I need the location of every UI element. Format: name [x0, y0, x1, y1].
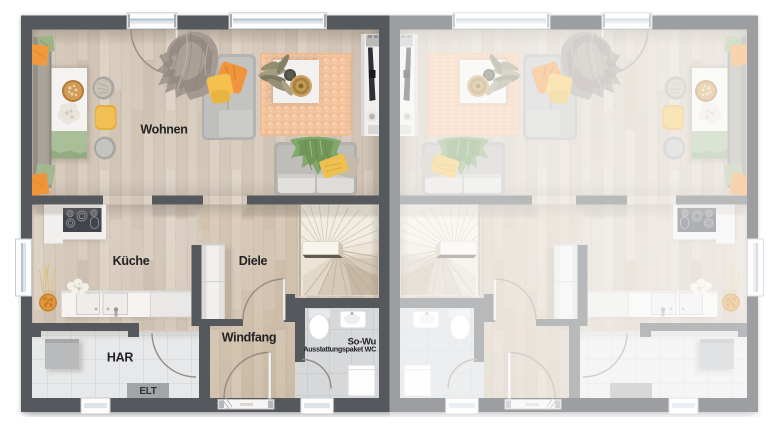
- svg-text:ELT: ELT: [139, 386, 156, 397]
- svg-text:Windfang: Windfang: [222, 331, 276, 345]
- svg-text:Ausstattungspaket WC: Ausstattungspaket WC: [303, 345, 376, 354]
- svg-text:Diele: Diele: [239, 254, 268, 268]
- svg-text:Küche: Küche: [113, 254, 150, 268]
- svg-text:HAR: HAR: [107, 351, 133, 365]
- svg-text:Wohnen: Wohnen: [140, 123, 187, 137]
